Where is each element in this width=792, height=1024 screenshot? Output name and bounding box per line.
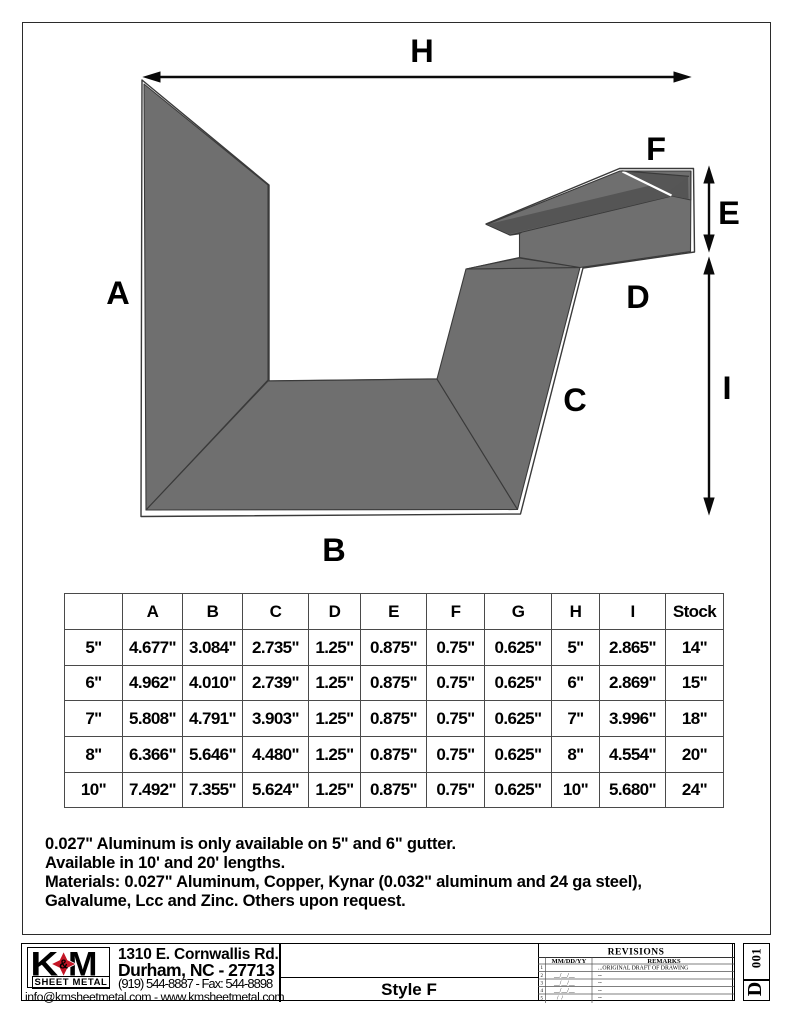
svg-text:MM/DD/YY: MM/DD/YY — [552, 958, 587, 965]
svg-text:I: I — [722, 370, 731, 406]
svg-text:E: E — [718, 195, 740, 231]
svg-text:D: D — [744, 982, 766, 996]
svg-text:5: 5 — [540, 997, 543, 1002]
svg-text:/ /: / / — [554, 996, 563, 1002]
svg-text:A: A — [106, 275, 129, 311]
svg-text:REMARKS: REMARKS — [647, 958, 681, 965]
svg-text:REVISIONS: REVISIONS — [608, 948, 665, 958]
svg-text:001: 001 — [750, 948, 764, 968]
svg-text:__/__/__: __/__/__ — [553, 973, 575, 979]
svg-text:F: F — [646, 131, 666, 167]
svg-text:2: 2 — [540, 974, 543, 979]
svg-text:--: -- — [598, 988, 602, 994]
svg-text:__/__/__: __/__/__ — [553, 981, 575, 987]
svg-text:H: H — [410, 33, 433, 69]
svg-text:4: 4 — [540, 989, 543, 994]
svg-text:--: -- — [598, 980, 602, 986]
svg-text:__/__/__: __/__/__ — [553, 988, 575, 994]
svg-text:C: C — [563, 382, 586, 418]
svg-text:1: 1 — [540, 966, 543, 971]
svg-text:--: -- — [598, 973, 602, 979]
svg-text:&: & — [59, 958, 68, 972]
svg-text:--: -- — [598, 995, 602, 1001]
svg-text:B: B — [322, 532, 345, 568]
svg-text:D: D — [626, 279, 649, 315]
svg-text:...ORIGINAL DRAFT OF DRAWING: ...ORIGINAL DRAFT OF DRAWING — [598, 966, 688, 972]
svg-text:3: 3 — [540, 982, 543, 987]
